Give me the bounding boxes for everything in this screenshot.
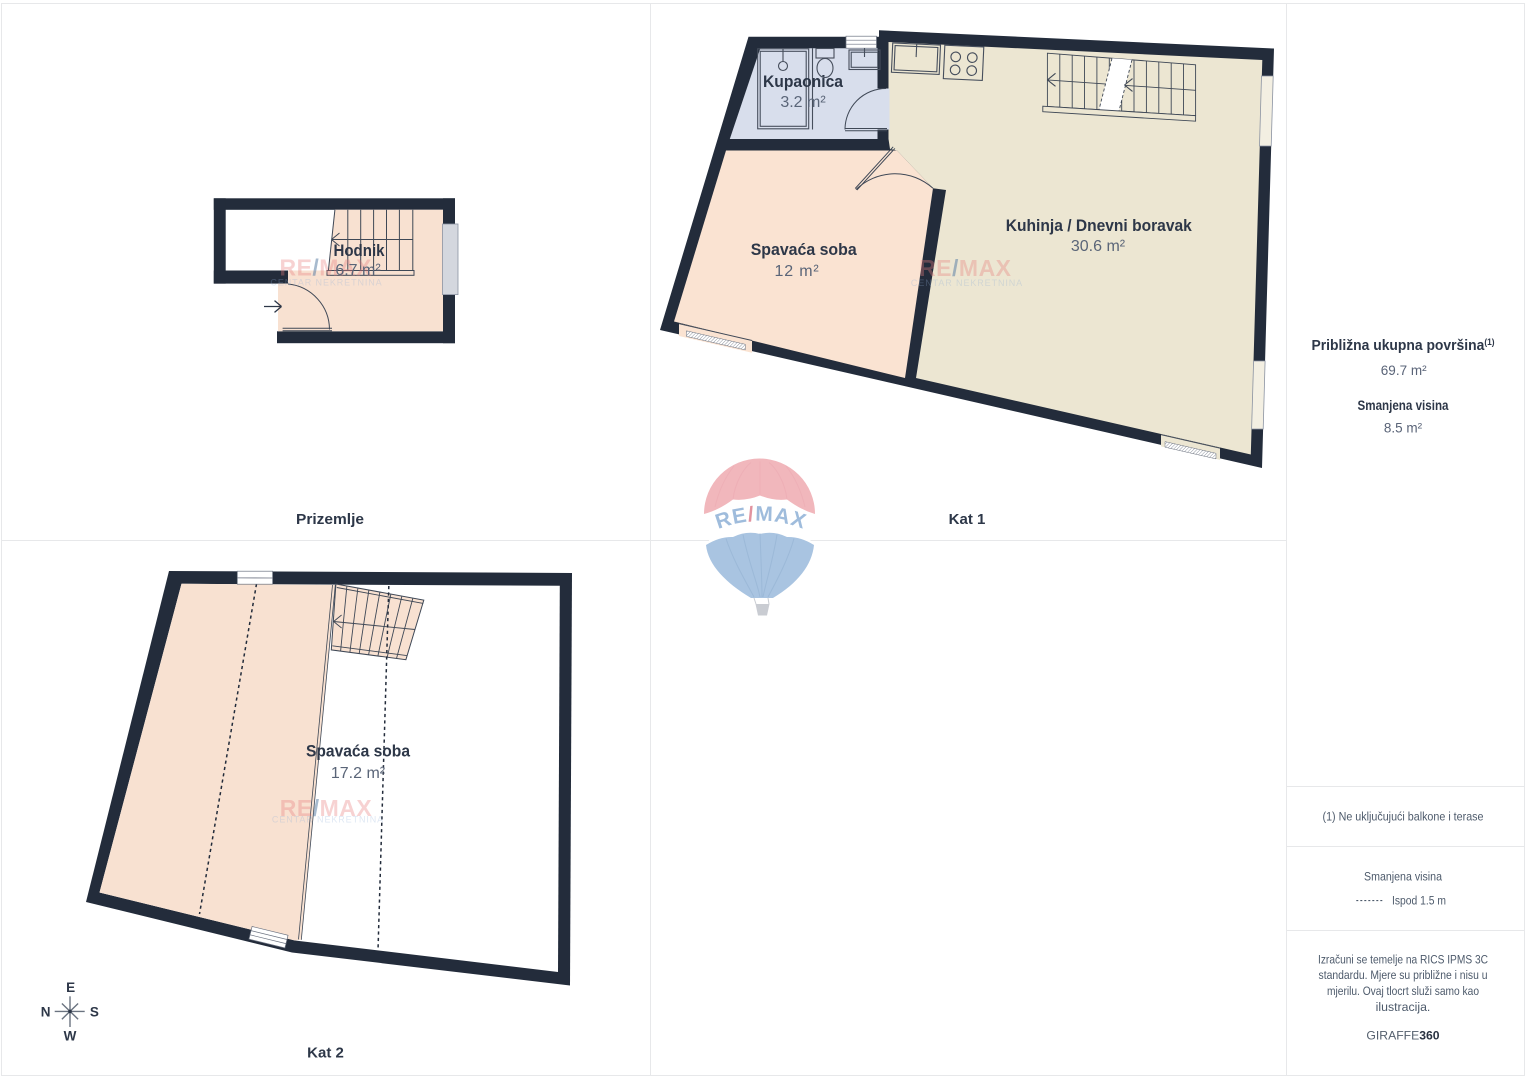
- svg-text:GIRAFFE360: GIRAFFE360: [1366, 1029, 1439, 1043]
- svg-text:mjerilu. Ovaj tlocrt služi sam: mjerilu. Ovaj tlocrt služi samo kao: [1327, 984, 1479, 998]
- svg-text:3.2 m²: 3.2 m²: [780, 94, 826, 111]
- svg-text:N: N: [41, 1004, 51, 1019]
- svg-text:(1) Ne uključujući balkone i t: (1) Ne uključujući balkone i terase: [1323, 810, 1484, 824]
- svg-text:69.7 m²: 69.7 m²: [1381, 363, 1427, 378]
- svg-text:ilustracija.: ilustracija.: [1376, 1000, 1431, 1014]
- svg-text:Kuhinja / Dnevni boravak: Kuhinja / Dnevni boravak: [1006, 216, 1192, 235]
- svg-text:30.6 m²: 30.6 m²: [1071, 238, 1126, 255]
- svg-text:Kat 1: Kat 1: [949, 511, 986, 528]
- svg-text:Izračuni se temelje na RICS IP: Izračuni se temelje na RICS IPMS 3C: [1318, 953, 1488, 967]
- svg-text:Smanjena visina: Smanjena visina: [1364, 870, 1442, 884]
- svg-text:8.5 m²: 8.5 m²: [1384, 421, 1423, 436]
- svg-text:Kat 2: Kat 2: [307, 1045, 344, 1062]
- svg-text:Kupaonica: Kupaonica: [763, 72, 843, 91]
- svg-text:standardu. Mjere su približne: standardu. Mjere su približne i nisu u: [1319, 968, 1488, 982]
- svg-text:Ispod 1.5 m: Ispod 1.5 m: [1392, 894, 1446, 908]
- svg-text:CENTAR NEKRETNINA: CENTAR NEKRETNINA: [911, 278, 1023, 288]
- svg-text:CENTAR NEKRETNINA: CENTAR NEKRETNINA: [272, 815, 384, 825]
- svg-text:Prizemlje: Prizemlje: [296, 511, 364, 528]
- svg-text:6.7 m²: 6.7 m²: [335, 262, 381, 279]
- svg-text:Spavaća soba: Spavaća soba: [306, 742, 410, 761]
- svg-text:17.2 m²: 17.2 m²: [331, 765, 386, 782]
- svg-text:Hodnik: Hodnik: [334, 241, 385, 260]
- svg-text:12 m²: 12 m²: [775, 263, 820, 280]
- svg-text:W: W: [64, 1029, 77, 1044]
- svg-text:S: S: [90, 1004, 99, 1019]
- svg-text:Približna ukupna površina(1): Približna ukupna površina(1): [1312, 337, 1495, 354]
- svg-text:Spavaća soba: Spavaća soba: [751, 240, 858, 259]
- svg-text:Smanjena visina: Smanjena visina: [1358, 398, 1449, 413]
- svg-text:E: E: [66, 980, 75, 995]
